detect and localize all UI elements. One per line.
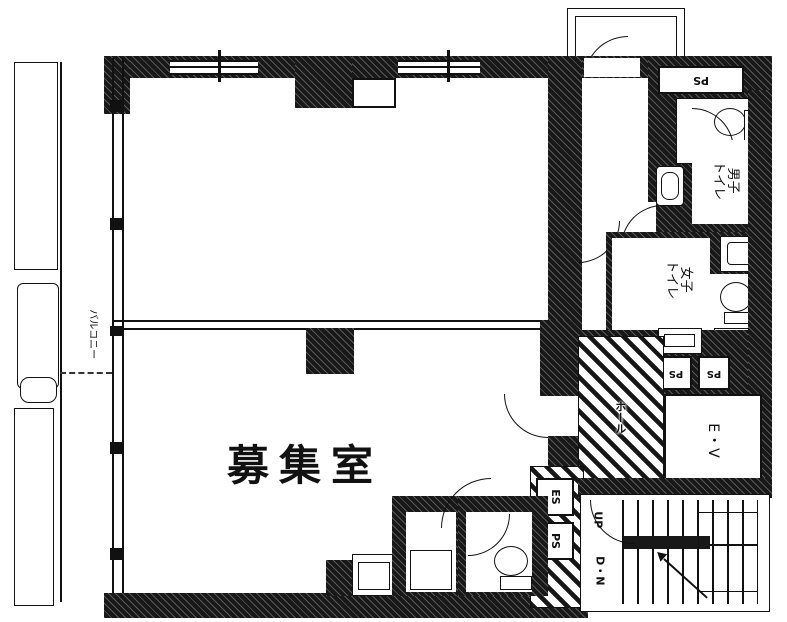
mens-toilet-line1: 男子 <box>726 161 740 200</box>
balcony-strip-top <box>14 62 58 270</box>
down-text: D・N <box>594 556 606 585</box>
wall-bottom <box>104 593 588 618</box>
main-room-door-gap <box>548 396 582 436</box>
door-arc-main-room <box>504 394 548 438</box>
sink-kitchenette <box>410 550 452 590</box>
wall-left-anchor-5 <box>110 548 124 560</box>
window-top-2 <box>398 60 480 75</box>
balcony-box-small <box>20 377 57 403</box>
elevator-room: E・V <box>664 394 762 488</box>
ps-box-right: PS <box>698 356 730 390</box>
main-room-label: 募集室 <box>205 436 405 496</box>
toilet-icon-small <box>494 546 528 576</box>
partition-line-1 <box>112 320 582 322</box>
balcony-edge-line <box>60 62 62 602</box>
ps-room-top: PS <box>658 66 744 94</box>
urinal-bowl <box>661 172 679 200</box>
duct-box <box>352 78 396 108</box>
wall-top-pillar <box>295 56 352 108</box>
balcony-dashed-line <box>60 372 112 374</box>
counter-inner <box>664 334 695 347</box>
womens-toilet-line1: 女子 <box>679 260 693 299</box>
wall-left-inner-line <box>122 58 124 615</box>
ps-box-left: PS <box>660 356 692 390</box>
stairs-down-label: D・N <box>586 546 614 596</box>
womens-toilet-line2: トイレ <box>665 260 679 299</box>
balcony-label-text: バルコニー <box>87 309 98 359</box>
elevator-label: E・V <box>668 394 758 488</box>
wall-tick-1 <box>218 50 221 82</box>
porch-doorway-gap <box>584 58 640 77</box>
wall-left-anchor-2 <box>110 218 124 230</box>
wall-tick-2 <box>447 50 450 82</box>
toilet-tank-womens <box>724 312 751 324</box>
shaft-hall-label: ホール <box>600 360 640 475</box>
up-text: UP <box>591 511 603 528</box>
toilet-tank-small <box>500 576 532 590</box>
ps-label-top: PS <box>660 68 742 92</box>
wall-left-anchor-1 <box>110 100 124 112</box>
ps-label-left: PS <box>662 358 690 388</box>
window-top-1 <box>170 60 258 75</box>
balcony-label: バルコニー <box>70 298 114 370</box>
partition-column <box>306 328 354 374</box>
balcony-strip-bottom <box>14 408 54 606</box>
wall-bottom-stub <box>326 560 354 596</box>
wall-left-outer-line <box>112 58 114 615</box>
counter-icon-small <box>358 562 390 590</box>
wall-corridor-left <box>548 56 582 340</box>
stairs-up-label: UP <box>584 500 610 540</box>
balcony-box-middle <box>17 283 59 389</box>
floor-plan: バルコニー 募集室 PS 男子 トイレ <box>0 0 787 622</box>
stair-inner-outline <box>698 512 758 592</box>
womens-toilet-label: 女子 トイレ <box>650 242 708 318</box>
partition-right-chunk <box>540 320 582 396</box>
wall-left-anchor-4 <box>110 442 124 454</box>
mens-toilet-line2: トイレ <box>712 161 726 200</box>
ps-label-right: PS <box>700 358 728 388</box>
